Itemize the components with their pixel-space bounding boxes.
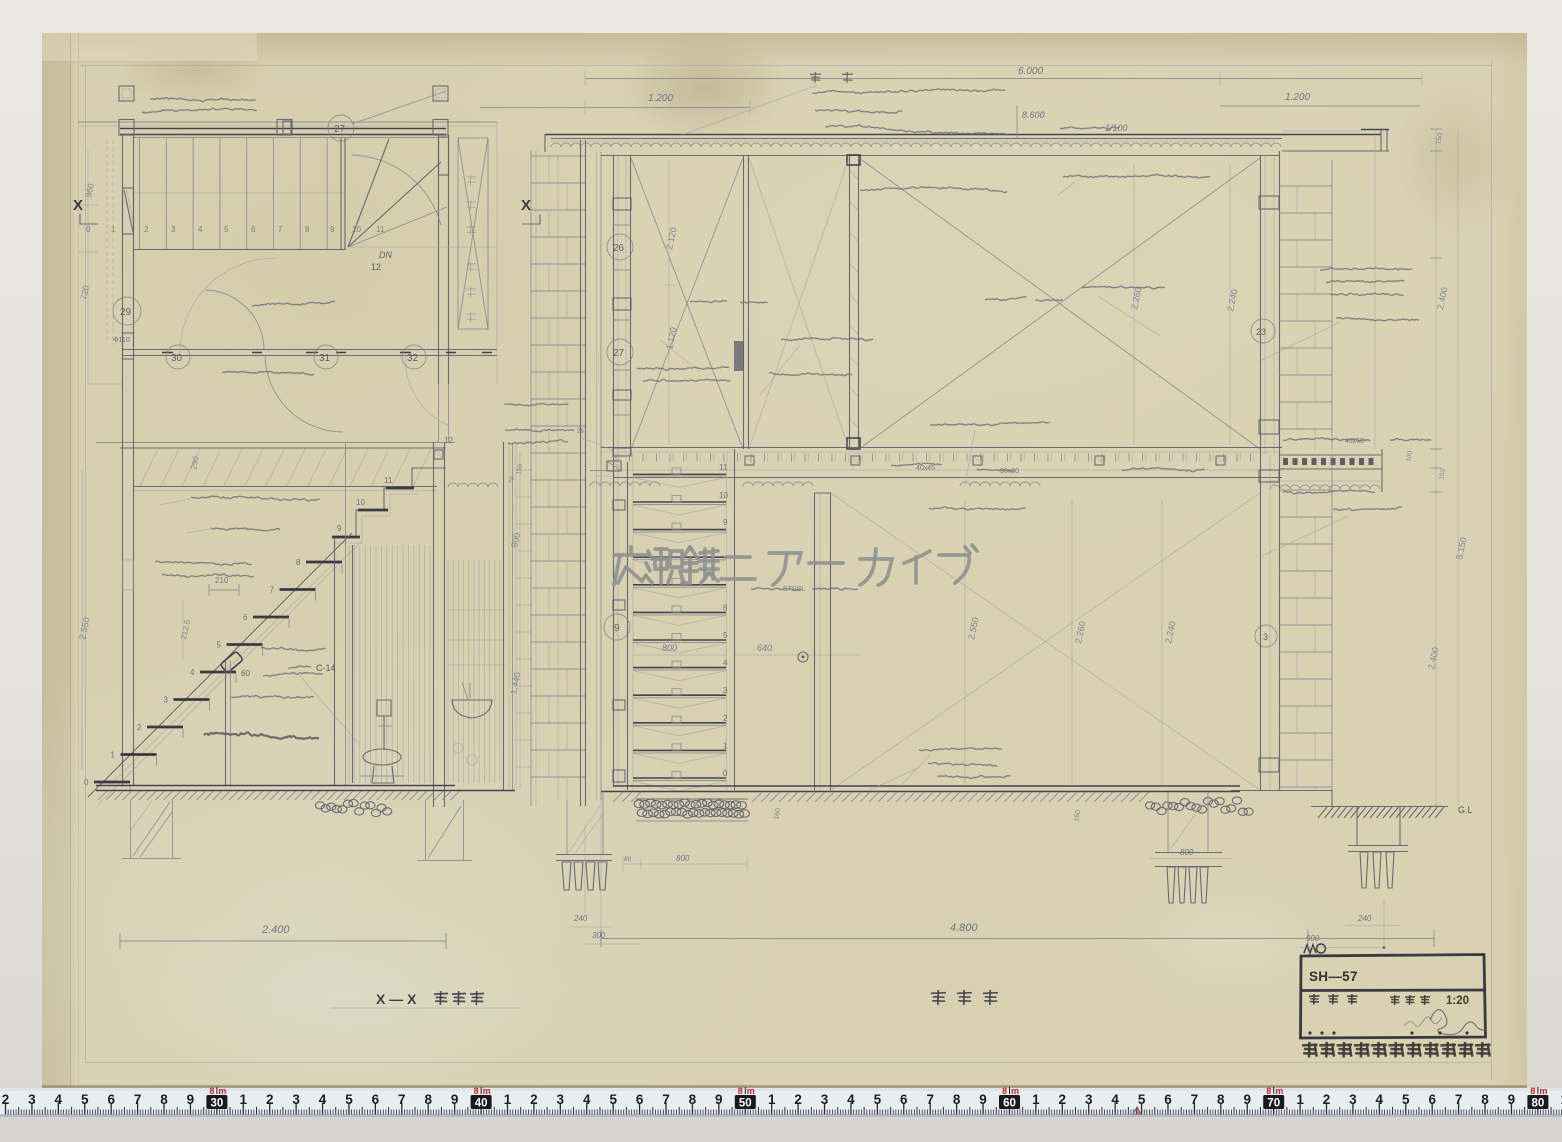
svg-text:10: 10 — [352, 225, 361, 234]
svg-text:80: 80 — [624, 856, 632, 863]
svg-text:m: m — [483, 1086, 491, 1096]
svg-text:800: 800 — [676, 854, 690, 863]
svg-text:29: 29 — [120, 307, 132, 318]
svg-text:8: 8 — [953, 1092, 961, 1107]
svg-text:7: 7 — [662, 1092, 670, 1107]
svg-text:3: 3 — [171, 225, 176, 234]
svg-text:2.400: 2.400 — [1426, 646, 1440, 670]
svg-text:960: 960 — [83, 182, 96, 198]
svg-text:2.240: 2.240 — [1163, 620, 1177, 644]
svg-text:1.120: 1.120 — [664, 326, 678, 350]
svg-text:2: 2 — [723, 714, 728, 723]
svg-text:4: 4 — [55, 1092, 63, 1107]
svg-text:10: 10 — [719, 491, 728, 500]
svg-text:2.400: 2.400 — [1435, 286, 1449, 310]
svg-text:8: 8 — [689, 1092, 697, 1107]
svg-text:32: 32 — [407, 353, 419, 364]
svg-text:4: 4 — [1376, 1092, 1384, 1107]
svg-text:5: 5 — [1138, 1092, 1146, 1107]
svg-text:3: 3 — [164, 696, 169, 705]
svg-text:210: 210 — [215, 576, 229, 585]
svg-text:X: X — [521, 197, 531, 214]
svg-text:12: 12 — [444, 436, 453, 445]
svg-text:80: 80 — [1532, 1098, 1545, 1110]
svg-text:3: 3 — [1263, 632, 1268, 642]
svg-text:4: 4 — [723, 659, 728, 668]
svg-text:1: 1 — [723, 741, 728, 750]
svg-text:DN: DN — [379, 250, 392, 260]
svg-text:4: 4 — [319, 1092, 327, 1107]
svg-text:11: 11 — [384, 476, 393, 485]
svg-text:2.120: 2.120 — [664, 226, 678, 250]
svg-text:60: 60 — [241, 669, 250, 678]
svg-text:8: 8 — [474, 1086, 479, 1096]
svg-text:2: 2 — [137, 723, 142, 732]
svg-text:5: 5 — [1402, 1092, 1410, 1107]
svg-text:800: 800 — [1180, 848, 1194, 857]
svg-text:4: 4 — [847, 1092, 855, 1107]
svg-text:2: 2 — [2, 1092, 10, 1107]
svg-text:1,440: 1,440 — [508, 671, 522, 695]
svg-text:11: 11 — [376, 225, 385, 234]
svg-text:8: 8 — [1266, 1086, 1271, 1096]
svg-text:2: 2 — [1323, 1092, 1331, 1107]
svg-text:2.260: 2.260 — [1129, 286, 1143, 310]
svg-text:2.260: 2.260 — [1073, 620, 1087, 644]
svg-text:8.600: 8.600 — [1022, 110, 1045, 120]
svg-text:6.000: 6.000 — [1018, 66, 1043, 77]
svg-text:6: 6 — [900, 1092, 908, 1107]
svg-text:1.200: 1.200 — [648, 93, 673, 104]
svg-text:8: 8 — [1481, 1092, 1489, 1107]
svg-text:3: 3 — [557, 1092, 565, 1107]
svg-text:7: 7 — [926, 1092, 934, 1107]
svg-text:C-14: C-14 — [316, 663, 336, 673]
svg-text:7: 7 — [134, 1092, 142, 1107]
svg-text:800: 800 — [662, 643, 677, 653]
svg-text:30: 30 — [211, 1098, 224, 1110]
svg-text:2.240: 2.240 — [1225, 288, 1239, 312]
svg-text:10: 10 — [356, 498, 365, 507]
svg-text:12: 12 — [371, 262, 381, 272]
svg-text:9: 9 — [337, 524, 342, 533]
svg-text:31: 31 — [319, 353, 331, 364]
svg-text:8: 8 — [424, 1092, 432, 1107]
svg-text:2: 2 — [794, 1092, 802, 1107]
svg-text:STEEL: STEEL — [783, 586, 805, 593]
svg-text:6: 6 — [107, 1092, 115, 1107]
svg-text:90x90: 90x90 — [1000, 468, 1019, 475]
svg-text:3: 3 — [292, 1092, 300, 1107]
svg-text:900: 900 — [1306, 934, 1320, 943]
svg-text:9: 9 — [187, 1092, 195, 1107]
svg-text:40: 40 — [475, 1098, 488, 1110]
svg-text:6: 6 — [243, 613, 248, 622]
svg-text:150: 150 — [515, 463, 524, 475]
svg-text:27: 27 — [334, 124, 346, 135]
svg-text:2: 2 — [530, 1092, 538, 1107]
svg-text:5: 5 — [874, 1092, 882, 1107]
svg-text:1: 1 — [504, 1092, 512, 1107]
svg-text:7: 7 — [278, 225, 283, 234]
svg-text:1: 1 — [1296, 1092, 1304, 1107]
svg-text:30: 30 — [171, 353, 183, 364]
svg-text:2: 2 — [1059, 1092, 1067, 1107]
svg-text:0: 0 — [84, 778, 89, 787]
svg-text:1: 1 — [111, 225, 116, 234]
svg-text:6: 6 — [1164, 1092, 1172, 1107]
svg-text:300: 300 — [592, 931, 606, 940]
svg-text:40x45: 40x45 — [916, 465, 935, 472]
svg-text:5: 5 — [217, 641, 222, 650]
svg-text:0: 0 — [86, 225, 91, 234]
svg-text:m: m — [1275, 1086, 1283, 1096]
svg-text:8: 8 — [209, 1086, 214, 1096]
svg-text:2: 2 — [144, 225, 149, 234]
svg-text:9: 9 — [614, 623, 620, 634]
svg-text:50: 50 — [739, 1098, 752, 1110]
svg-text:2.550: 2.550 — [966, 616, 980, 640]
svg-text:5: 5 — [609, 1092, 617, 1107]
svg-text:6: 6 — [636, 1092, 644, 1107]
svg-text:8: 8 — [160, 1092, 168, 1107]
svg-text:9: 9 — [1508, 1092, 1516, 1107]
svg-text:5: 5 — [81, 1092, 89, 1107]
svg-text:SH—57: SH—57 — [1309, 969, 1358, 984]
svg-text:1: 1 — [111, 751, 116, 760]
svg-text:G.L: G.L — [1458, 805, 1473, 815]
svg-text:240: 240 — [573, 914, 588, 923]
svg-text:8: 8 — [305, 225, 310, 234]
svg-text:8: 8 — [1217, 1092, 1225, 1107]
svg-text:4: 4 — [583, 1092, 591, 1107]
svg-text:8: 8 — [1002, 1086, 1007, 1096]
svg-text:4: 4 — [1111, 1092, 1119, 1107]
svg-text:7: 7 — [1455, 1092, 1463, 1107]
svg-text:m: m — [1539, 1086, 1547, 1096]
svg-text:150: 150 — [1435, 132, 1444, 145]
svg-text:5: 5 — [224, 225, 229, 234]
svg-text:0: 0 — [723, 769, 728, 778]
svg-text:Φ110: Φ110 — [113, 337, 130, 344]
svg-text:1: 1 — [240, 1092, 248, 1107]
svg-text:160: 160 — [1073, 809, 1082, 822]
svg-text:45x50: 45x50 — [1345, 438, 1364, 445]
svg-text:3: 3 — [723, 686, 728, 695]
svg-text:3: 3 — [28, 1092, 36, 1107]
svg-text:160: 160 — [773, 807, 782, 820]
svg-text:6: 6 — [251, 225, 256, 234]
svg-text:9: 9 — [723, 518, 728, 527]
svg-text:720: 720 — [78, 284, 91, 300]
svg-text:6: 6 — [1428, 1092, 1436, 1107]
svg-text:1.200: 1.200 — [1285, 92, 1310, 103]
svg-text:150: 150 — [1438, 468, 1447, 480]
svg-text:6: 6 — [372, 1092, 380, 1107]
svg-text:X — X: X — X — [376, 991, 417, 1007]
svg-text:11: 11 — [719, 463, 728, 472]
svg-text:4: 4 — [198, 225, 203, 234]
svg-text:X: X — [73, 197, 83, 214]
svg-text:4.800: 4.800 — [950, 922, 978, 934]
svg-text:23: 23 — [1256, 327, 1266, 337]
svg-text:5: 5 — [723, 631, 728, 640]
svg-text:7: 7 — [398, 1092, 406, 1107]
svg-text:2.550: 2.550 — [77, 616, 91, 640]
svg-text:6: 6 — [723, 603, 728, 612]
svg-text:26: 26 — [577, 429, 584, 435]
svg-text:9: 9 — [451, 1092, 459, 1107]
svg-text:4: 4 — [190, 668, 195, 677]
svg-text:1:20: 1:20 — [1446, 995, 1469, 1007]
svg-text:m: m — [218, 1086, 226, 1096]
svg-text:3: 3 — [821, 1092, 829, 1107]
svg-text:212.5: 212.5 — [179, 618, 192, 640]
svg-text:3: 3 — [1349, 1092, 1357, 1107]
svg-text:26: 26 — [613, 243, 625, 254]
svg-text:9: 9 — [330, 225, 335, 234]
svg-text:m: m — [747, 1086, 755, 1096]
svg-text:100: 100 — [1405, 450, 1414, 462]
svg-text:1: 1 — [1032, 1092, 1040, 1107]
svg-text:240: 240 — [1357, 914, 1372, 923]
svg-text:3: 3 — [1085, 1092, 1093, 1107]
svg-text:9: 9 — [715, 1092, 723, 1107]
svg-text:2.400: 2.400 — [261, 924, 290, 936]
svg-text:5.150: 5.150 — [1454, 536, 1468, 560]
svg-text:7: 7 — [270, 586, 275, 595]
svg-text:7: 7 — [1191, 1092, 1199, 1107]
svg-text:70: 70 — [1267, 1098, 1280, 1110]
svg-text:60: 60 — [1003, 1098, 1016, 1110]
svg-text:8: 8 — [296, 558, 301, 567]
svg-text:1: 1 — [768, 1092, 776, 1107]
svg-text:640: 640 — [757, 643, 772, 653]
svg-text:9: 9 — [979, 1092, 987, 1107]
svg-text:8: 8 — [738, 1086, 743, 1096]
svg-text:2: 2 — [266, 1092, 274, 1107]
svg-text:5: 5 — [345, 1092, 353, 1107]
svg-text:8: 8 — [1530, 1086, 1535, 1096]
svg-text:27: 27 — [613, 348, 625, 359]
svg-text:9: 9 — [1243, 1092, 1251, 1107]
svg-text:m: m — [1011, 1086, 1019, 1096]
